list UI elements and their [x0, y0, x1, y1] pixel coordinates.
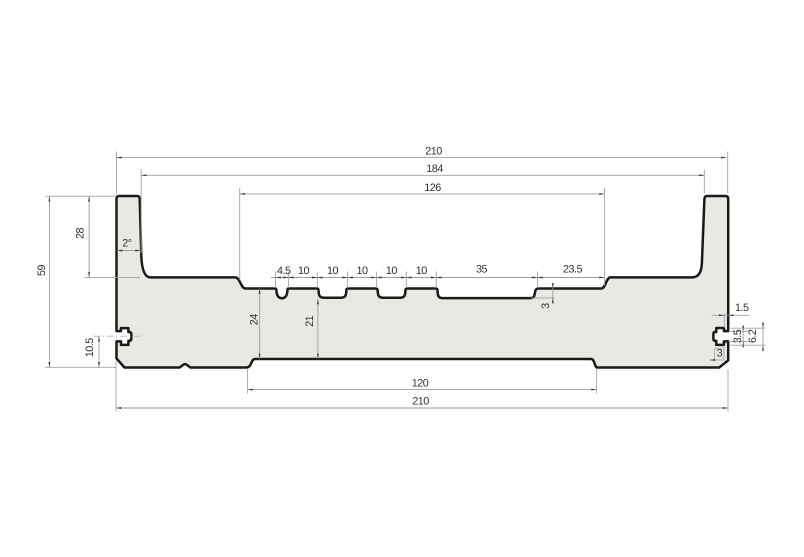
svg-text:28: 28 [75, 228, 87, 240]
svg-text:10: 10 [416, 265, 428, 277]
svg-text:184: 184 [426, 163, 443, 175]
svg-text:24: 24 [249, 314, 261, 326]
svg-text:10: 10 [298, 265, 310, 277]
svg-text:35: 35 [476, 263, 488, 275]
svg-text:120: 120 [412, 377, 429, 389]
svg-text:6.2: 6.2 [747, 329, 759, 343]
svg-text:10: 10 [386, 265, 398, 277]
svg-text:210: 210 [412, 395, 429, 407]
svg-text:21: 21 [304, 315, 316, 327]
svg-text:10.5: 10.5 [84, 338, 96, 358]
svg-text:3.5: 3.5 [732, 329, 744, 343]
svg-text:59: 59 [36, 265, 48, 277]
svg-text:10: 10 [327, 265, 339, 277]
svg-text:1.5: 1.5 [735, 302, 749, 314]
svg-text:3: 3 [717, 348, 723, 360]
svg-text:210: 210 [425, 146, 442, 158]
svg-text:3: 3 [540, 303, 552, 309]
svg-text:4.5: 4.5 [277, 265, 291, 277]
svg-text:10: 10 [356, 265, 368, 277]
svg-text:2°: 2° [122, 238, 132, 250]
svg-text:126: 126 [424, 182, 441, 194]
svg-text:23.5: 23.5 [563, 263, 583, 275]
